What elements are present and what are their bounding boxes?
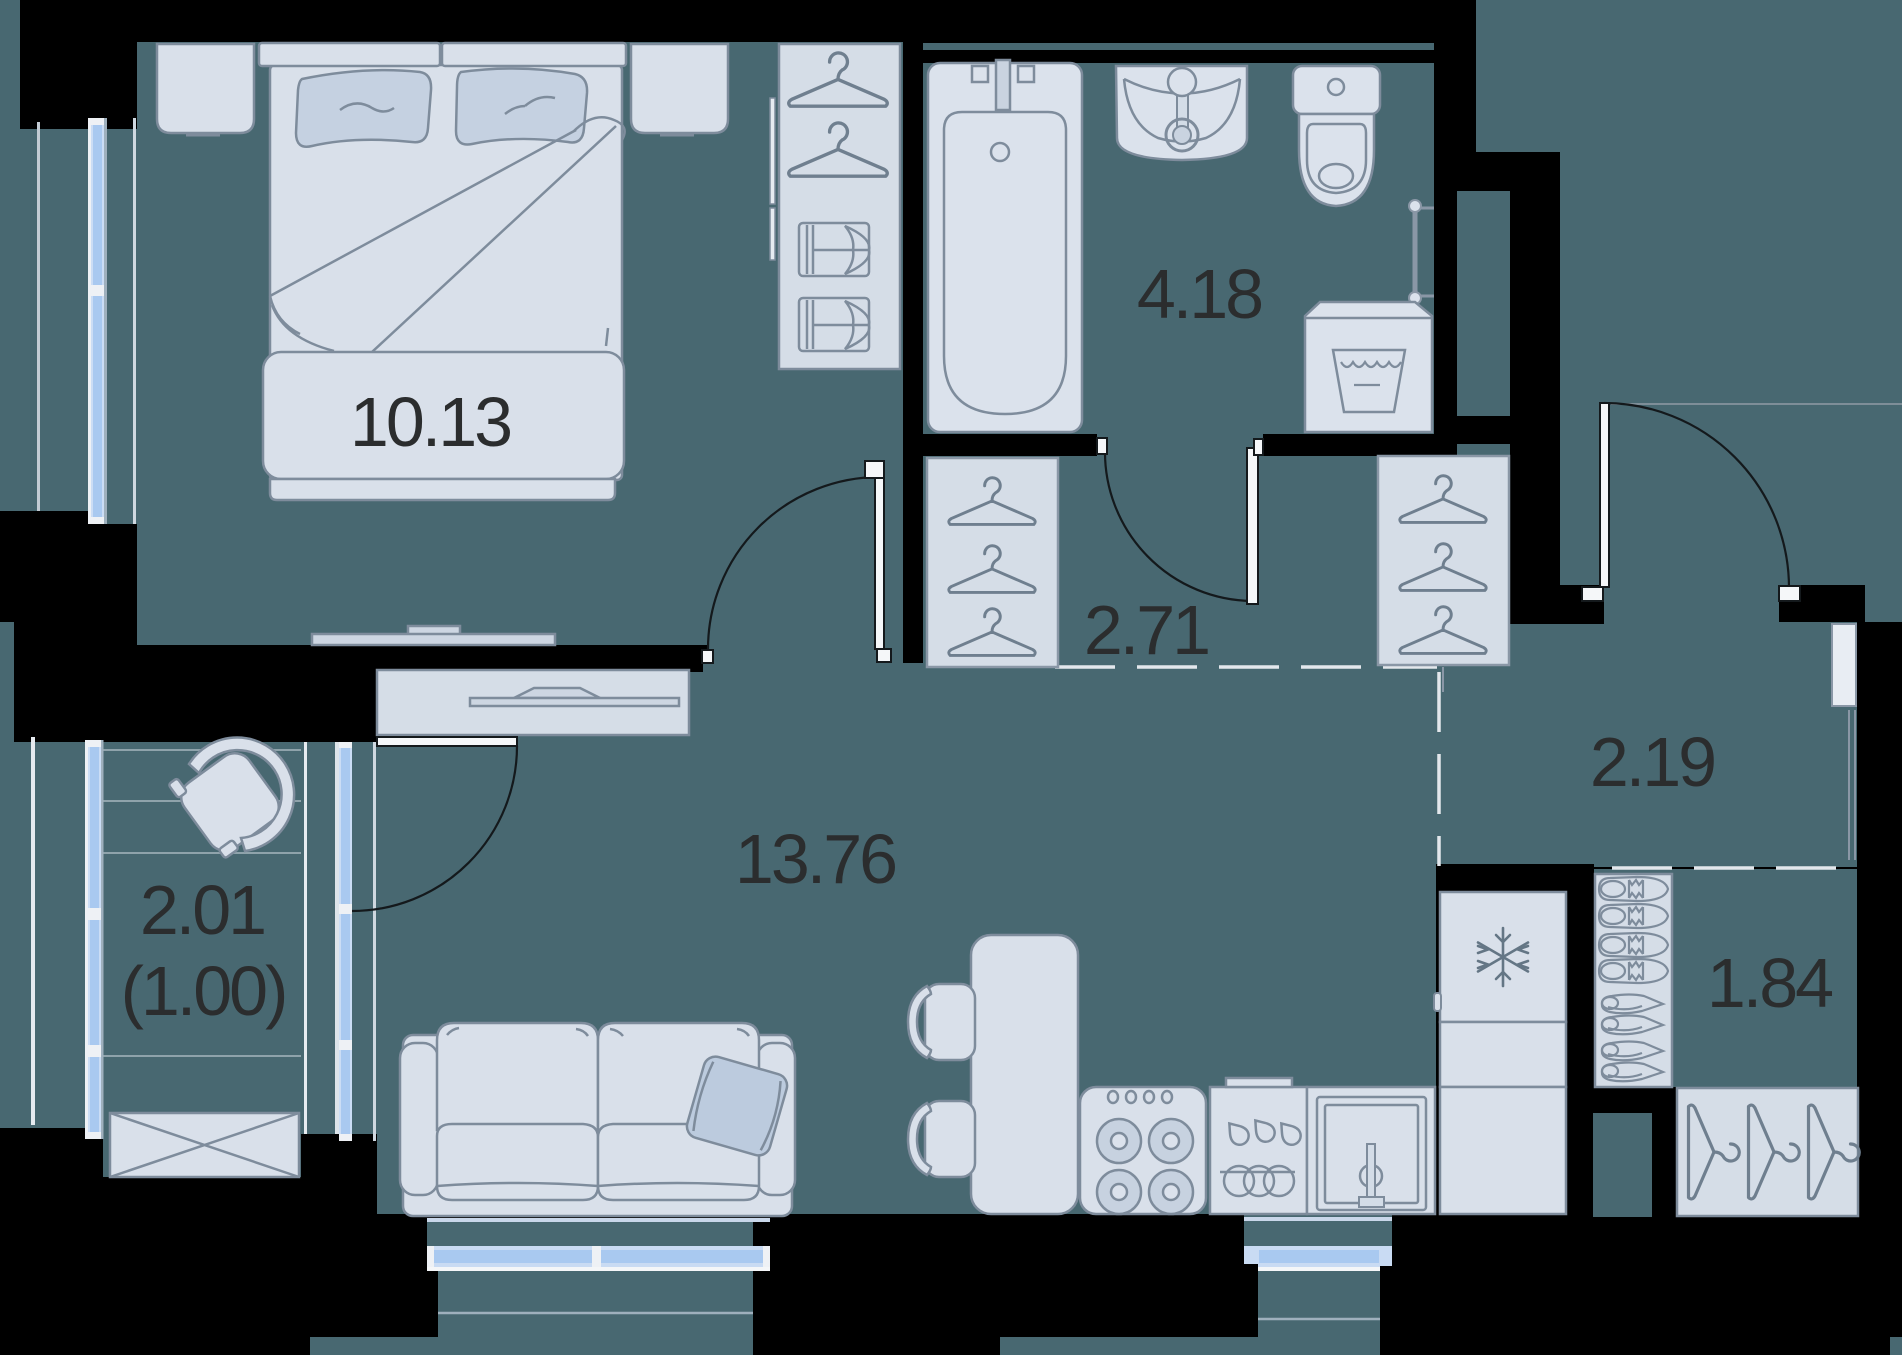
svg-text:2.19: 2.19 <box>1590 723 1714 801</box>
svg-text:13.76: 13.76 <box>735 820 895 898</box>
svg-text:4.18: 4.18 <box>1137 255 1261 333</box>
svg-text:2.71: 2.71 <box>1084 591 1208 669</box>
svg-text:(1.00): (1.00) <box>121 952 286 1030</box>
svg-text:2.01: 2.01 <box>140 871 264 949</box>
svg-text:10.13: 10.13 <box>350 383 510 461</box>
svg-text:1.84: 1.84 <box>1707 944 1832 1022</box>
